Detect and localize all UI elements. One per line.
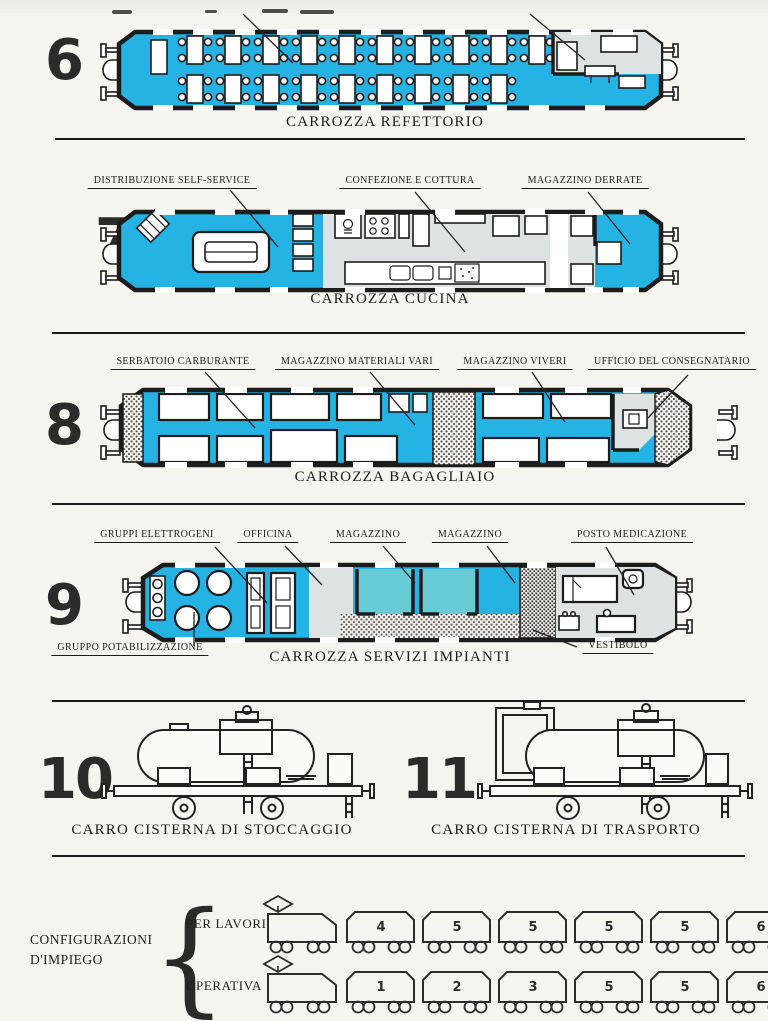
config-car-icon: 5 [650, 958, 720, 1016]
wheel-icon [319, 1002, 330, 1013]
wheel-icon [282, 942, 293, 953]
wheel-icon [429, 942, 440, 953]
car-number-11: 11 [402, 752, 476, 808]
config-car-icon: 5 [574, 958, 644, 1016]
caption-carro-cisterna-stoccaggio: CARRO CISTERNA DI STOCCAGGIO [71, 822, 352, 839]
wheel-icon [465, 942, 476, 953]
wheel-icon [364, 1002, 375, 1013]
wheel-icon [592, 1002, 603, 1013]
divider [52, 855, 745, 857]
wheel-icon [693, 1002, 704, 1013]
config-car-number: 3 [528, 980, 537, 995]
center-hatch [433, 392, 475, 465]
wheel-icon [389, 942, 400, 953]
wheel-icon [744, 1002, 755, 1013]
wheel-icon [440, 1002, 451, 1013]
wheel-icon [505, 942, 516, 953]
wheel-icon [353, 1002, 364, 1013]
config-row-label: OPERATIVA [186, 978, 262, 994]
wheel-icon [389, 1002, 400, 1013]
wheel-icon [647, 797, 669, 819]
car-number-8: 8 [45, 398, 82, 454]
tank-wagon-stoccaggio-drawing [100, 706, 380, 826]
carrozza-refettorio-floorplan [95, 14, 685, 124]
cutoff-text-fragment [205, 10, 217, 13]
label-vestibolo: VESTIBOLO [582, 640, 653, 654]
wheel-icon [440, 942, 451, 953]
label-gruppo-potabilizzazione: GRUPPO POTABILIZZAZIONE [51, 642, 208, 656]
locomotive-icon [266, 898, 340, 956]
config-car-number: 4 [376, 920, 385, 935]
wheel-icon [552, 1002, 563, 1013]
carrozza-cucina-floorplan [95, 186, 685, 294]
wheel-icon [505, 1002, 516, 1013]
wheel-icon [592, 942, 603, 953]
train-cars: 1 2 3 5 5 6 [266, 958, 768, 1016]
config-title: CONFIGURAZIONI D'IMPIEGO [30, 930, 153, 970]
config-car-number: 6 [756, 980, 765, 995]
wheel-icon [733, 942, 744, 953]
cutoff-text-fragment [262, 9, 288, 13]
wheel-icon [541, 942, 552, 953]
config-row-label: PER LAVORI [186, 916, 267, 932]
config-car-icon: 3 [498, 958, 568, 1016]
caption-carrozza-cucina: CARROZZA CUCINA [310, 291, 469, 308]
wheel-icon [541, 1002, 552, 1013]
wheel-icon [282, 1002, 293, 1013]
wheel-icon [668, 1002, 679, 1013]
wheel-icon [319, 942, 330, 953]
wheel-icon [271, 1002, 282, 1013]
wheel-icon [476, 1002, 487, 1013]
wheel-icon [744, 942, 755, 953]
wheel-icon [271, 942, 282, 953]
wheel-icon [476, 942, 487, 953]
wheel-icon [628, 942, 639, 953]
page: 6 [0, 0, 768, 1021]
wheel-icon [173, 797, 195, 819]
config-car-icon: 6 [726, 898, 768, 956]
wheel-icon [353, 942, 364, 953]
car-number-6: 6 [45, 33, 82, 89]
divider [52, 332, 745, 334]
medical-room [556, 567, 675, 638]
brace-glyph: { [152, 885, 227, 1021]
wheel-icon [657, 942, 668, 953]
train-cars: 4 5 5 5 5 6 [266, 898, 768, 956]
wheel-icon [704, 1002, 715, 1013]
config-car-number: 5 [604, 980, 613, 995]
caption-carrozza-refettorio: CARROZZA REFETTORIO [286, 114, 484, 131]
wheel-icon [308, 1002, 319, 1013]
right-buffers-icon [717, 406, 737, 459]
config-car-icon: 1 [346, 958, 416, 1016]
wheel-icon [657, 1002, 668, 1013]
wheel-icon [668, 942, 679, 953]
wheel-icon [557, 797, 579, 819]
divider [52, 503, 745, 505]
wheel-icon [308, 942, 319, 953]
caption-carrozza-bagagliaio: CARROZZA BAGAGLIAIO [295, 469, 496, 486]
tank-wagon-trasporto-drawing [470, 700, 755, 826]
car-number-9: 9 [45, 578, 82, 634]
config-car-number: 5 [680, 980, 689, 995]
config-car-icon: 6 [726, 958, 768, 1016]
config-car-number: 5 [528, 920, 537, 935]
config-car-icon: 5 [650, 898, 720, 956]
wheel-icon [400, 1002, 411, 1013]
wheel-icon [733, 1002, 744, 1013]
wheel-icon [704, 942, 715, 953]
wheel-icon [693, 942, 704, 953]
config-car-number: 1 [376, 980, 385, 995]
config-car-icon: 5 [498, 898, 568, 956]
corridor [550, 214, 568, 288]
config-car-number: 5 [452, 920, 461, 935]
config-car-icon: 5 [574, 898, 644, 956]
config-car-number: 6 [756, 920, 765, 935]
config-car-number: 2 [452, 980, 461, 995]
wheel-icon [617, 1002, 628, 1013]
storeroom-1 [357, 569, 413, 614]
wheel-icon [465, 1002, 476, 1013]
wheel-icon [400, 942, 411, 953]
wheel-icon [429, 1002, 440, 1013]
config-car-number: 5 [680, 920, 689, 935]
caption-carro-cisterna-trasporto: CARRO CISTERNA DI TRASPORTO [431, 822, 701, 839]
config-car-number: 5 [604, 920, 613, 935]
wheel-icon [581, 942, 592, 953]
wheel-icon [516, 942, 527, 953]
wheel-icon [581, 1002, 592, 1013]
wheel-icon [516, 1002, 527, 1013]
divider [55, 138, 745, 140]
locomotive-icon [266, 958, 340, 1016]
caption-carrozza-servizi-impianti: CARROZZA SERVIZI IMPIANTI [269, 649, 510, 666]
storeroom-2 [421, 569, 477, 614]
wheel-icon [364, 942, 375, 953]
wheel-icon [628, 1002, 639, 1013]
carrozza-bagagliaio-floorplan [95, 350, 745, 480]
wheel-icon [617, 942, 628, 953]
config-car-icon: 2 [422, 958, 492, 1016]
config-car-icon: 4 [346, 898, 416, 956]
wheel-icon [261, 797, 283, 819]
vestibolo-area [520, 567, 556, 638]
wheel-icon [552, 942, 563, 953]
end-platform-hatch [123, 394, 143, 462]
config-car-icon: 5 [422, 898, 492, 956]
corridor-hatch [340, 614, 520, 638]
